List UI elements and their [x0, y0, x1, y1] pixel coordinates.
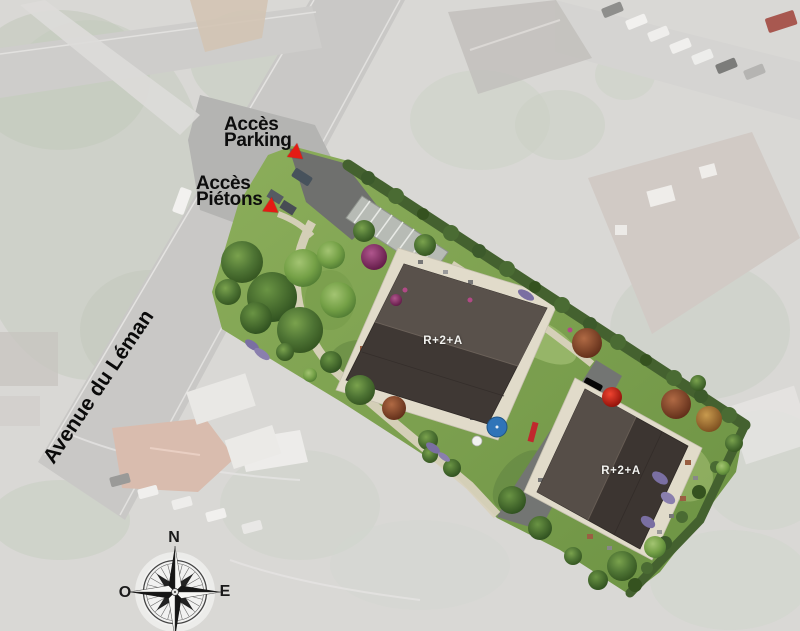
aerial-site-plan-graphic [0, 0, 800, 631]
compass-north-label: N [168, 529, 180, 547]
access-pietons-label: Accès Piétons [196, 176, 263, 208]
purple-tree [361, 244, 387, 270]
compass-west-label: O [119, 584, 131, 602]
building-2-label: R+2+A [601, 465, 640, 477]
parking-access-marker-icon [287, 142, 305, 159]
red-tree [382, 396, 406, 420]
access-parking-label: Accès Parking [224, 117, 292, 149]
compass-east-label: E [220, 583, 231, 601]
site-plan-map: Accès Parking Accès Piétons Avenue du Lé… [0, 0, 800, 631]
pedestrian-access-marker-icon [262, 196, 279, 212]
red-tree [572, 328, 602, 358]
white-table [472, 436, 482, 446]
building-1-label: R+2+A [423, 335, 462, 347]
red-parasol [602, 387, 622, 407]
